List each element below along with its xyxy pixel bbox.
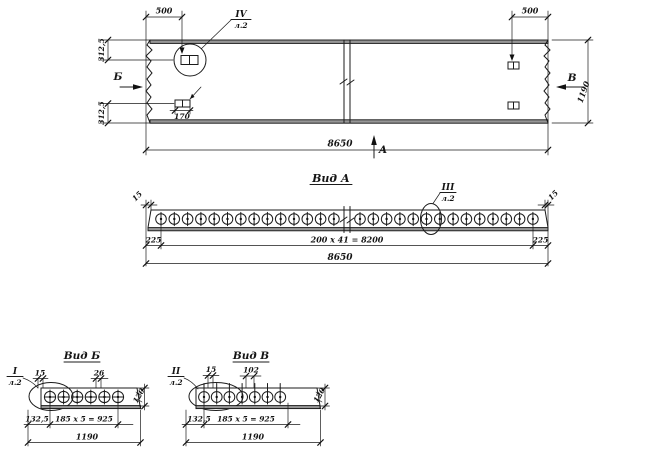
detail-i-sheet: л.2 <box>8 378 21 387</box>
hole-center-dot <box>160 218 162 220</box>
hole-center-dot <box>532 218 534 220</box>
view-v-title: Вид В <box>232 350 269 362</box>
view-b-holes <box>44 390 123 404</box>
plan-view: IV л.2 500 500 Б 3 <box>97 6 593 159</box>
hole-center-dot <box>253 218 255 220</box>
view-a-strip-bottom <box>148 228 548 231</box>
dim-500-right: 500 <box>510 6 549 156</box>
section-a-label: А <box>378 144 388 156</box>
detail-ii-num: II <box>171 367 181 377</box>
svg-text:132,5: 132,5 <box>187 415 211 424</box>
svg-text:170: 170 <box>174 112 190 121</box>
detail-iii-num: III <box>441 183 455 193</box>
hole-center-dot <box>293 218 295 220</box>
detail-iii-leader <box>433 193 440 204</box>
svg-text:500: 500 <box>522 6 539 16</box>
view-a: Вид А III л.2 15 15 <box>130 172 560 266</box>
svg-text:15: 15 <box>130 189 144 203</box>
svg-text:1190: 1190 <box>242 432 265 442</box>
hole-center-dot <box>359 218 361 220</box>
detail-iii-sheet: л.2 <box>441 194 454 203</box>
hole-center-dot <box>213 218 215 220</box>
view-b: Вид Б I л.2 15 26 <box>7 350 149 446</box>
view-a-title: Вид А <box>311 172 350 185</box>
view-v: Вид В II л.2 15 102 <box>168 350 330 446</box>
hole-center-dot <box>266 218 268 220</box>
hole-center-dot <box>479 218 481 220</box>
dim-500-left: 500 <box>146 6 185 156</box>
svg-text:8650: 8650 <box>327 140 353 150</box>
view-a-holes-left <box>156 212 340 225</box>
svg-text:15: 15 <box>546 188 560 202</box>
hole-center-dot <box>90 396 92 398</box>
hole-center-dot <box>279 396 281 398</box>
hole-center-dot <box>173 218 175 220</box>
hole-center-dot <box>241 396 243 398</box>
panel-drawing: IV л.2 500 500 Б 3 <box>0 0 670 459</box>
hole-center-dot <box>439 218 441 220</box>
panel-break-line <box>340 40 354 123</box>
svg-text:225: 225 <box>145 236 162 245</box>
section-v-label: В <box>567 72 577 84</box>
hole-center-dot <box>280 218 282 220</box>
detail-iv-leader <box>201 20 231 49</box>
hole-center-dot <box>254 396 256 398</box>
svg-text:132,5: 132,5 <box>25 415 49 424</box>
svg-text:500: 500 <box>156 6 173 16</box>
panel-right-broken-edge <box>544 40 550 123</box>
section-b-marker: Б <box>113 71 143 90</box>
section-b-label: Б <box>113 71 123 83</box>
hole-center-dot <box>62 396 64 398</box>
section-a-marker: А <box>371 135 387 158</box>
hole-center-dot <box>203 396 205 398</box>
hole-center-dot <box>385 218 387 220</box>
view-v-holes <box>199 384 286 405</box>
hole-center-dot <box>425 218 427 220</box>
svg-text:8650: 8650 <box>327 253 353 263</box>
view-a-holes-right <box>355 212 539 225</box>
hole-center-dot <box>518 218 520 220</box>
hole-center-dot <box>228 396 230 398</box>
hole-center-dot <box>319 218 321 220</box>
hole-center-dot <box>216 396 218 398</box>
hole-center-dot <box>76 396 78 398</box>
dim-8650-plan: 8650 <box>146 140 548 151</box>
dim-102-v: 102 <box>240 366 261 389</box>
svg-text:225: 225 <box>532 236 549 245</box>
svg-text:185 x 5 = 925: 185 x 5 = 925 <box>217 415 275 424</box>
svg-text:1190: 1190 <box>575 79 592 104</box>
hole-center-dot <box>49 396 51 398</box>
svg-text:1190: 1190 <box>76 432 99 442</box>
hole-center-dot <box>266 396 268 398</box>
detail-iv-sheet: л.2 <box>234 21 247 30</box>
hole-center-dot <box>186 218 188 220</box>
hole-center-dot <box>117 396 119 398</box>
hole-center-dot <box>492 218 494 220</box>
hole-center-dot <box>372 218 374 220</box>
hole-center-dot <box>200 218 202 220</box>
panel-left-broken-edge <box>146 40 152 123</box>
detail-ii-sheet: л.2 <box>169 378 182 387</box>
svg-text:312,5: 312,5 <box>97 38 106 62</box>
hole-center-dot <box>103 396 105 398</box>
detail-iv-num: IV <box>234 10 247 20</box>
view-b-title: Вид Б <box>63 350 100 362</box>
hole-center-dot <box>452 218 454 220</box>
hole-center-dot <box>412 218 414 220</box>
dim-rows-v: 132,5 185 x 5 = 925 1190 <box>182 403 321 446</box>
hole-center-dot <box>240 218 242 220</box>
view-b-strip-bottom <box>41 406 141 409</box>
hole-center-dot <box>399 218 401 220</box>
svg-text:185 x 5 = 925: 185 x 5 = 925 <box>55 415 113 424</box>
svg-text:312,5: 312,5 <box>97 101 106 125</box>
hole-center-dot <box>333 218 335 220</box>
view-v-strip-bottom <box>196 406 320 409</box>
hole-center-dot <box>226 218 228 220</box>
dim-row-total-a: 8650 <box>146 253 548 264</box>
hole-center-dot <box>505 218 507 220</box>
dim-170: 170 <box>170 107 193 121</box>
panel-bottom-edge <box>150 120 548 123</box>
svg-text:200 x 41 = 8200: 200 x 41 = 8200 <box>310 235 384 245</box>
detail-i-num: I <box>12 367 18 377</box>
hole-center-dot <box>465 218 467 220</box>
hole-center-dot <box>306 218 308 220</box>
dim-26-b: 26 <box>91 369 108 389</box>
